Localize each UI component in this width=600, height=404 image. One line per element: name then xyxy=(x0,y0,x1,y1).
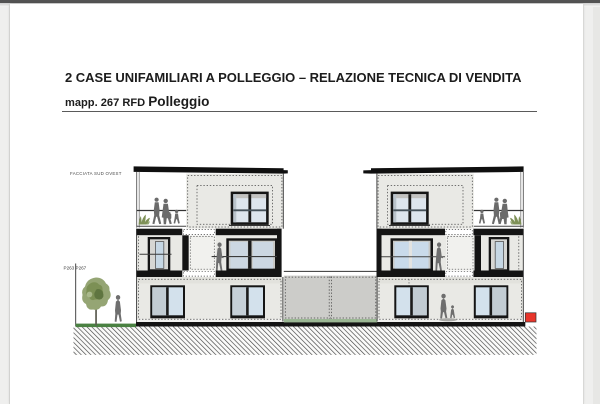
svg-text:P263 P267: P263 P267 xyxy=(64,266,87,271)
svg-text:FACCIATA SUD OVEST: FACCIATA SUD OVEST xyxy=(70,171,122,176)
